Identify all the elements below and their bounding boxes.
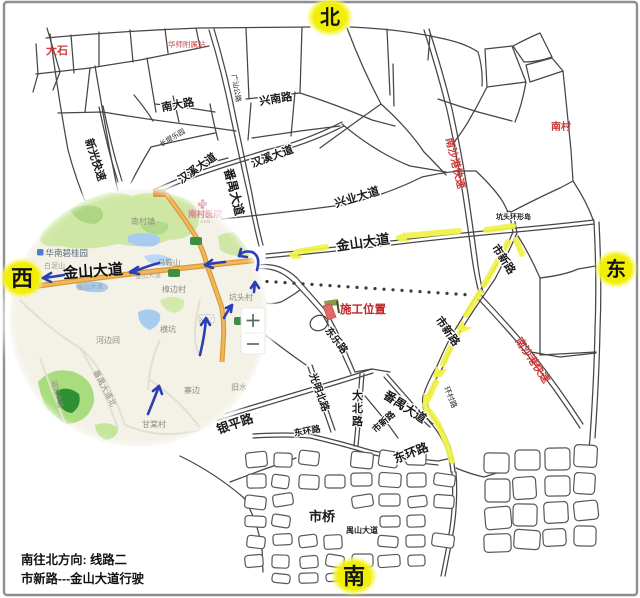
svg-text:禺山大道: 禺山大道: [346, 525, 378, 535]
svg-text:马鞍山: 马鞍山: [158, 257, 181, 267]
svg-text:施工位置: 施工位置: [340, 302, 386, 316]
svg-text:北: 北: [352, 401, 363, 415]
svg-text:甘棠村: 甘棠村: [142, 419, 166, 429]
svg-text:市新路---金山大道行驶: 市新路---金山大道行驶: [21, 571, 145, 586]
svg-text:南往北方向: 线路二: 南往北方向: 线路二: [21, 552, 127, 567]
svg-text:西: 西: [11, 266, 33, 291]
svg-text:北: 北: [320, 6, 340, 29]
svg-text:路: 路: [352, 414, 364, 428]
svg-text:坑头环形岛: 坑头环形岛: [496, 212, 531, 221]
svg-text:南: 南: [343, 564, 365, 589]
svg-text:大石: 大石: [46, 43, 68, 57]
svg-text:横坑: 横坑: [160, 324, 176, 334]
svg-text:南村: 南村: [551, 120, 571, 133]
svg-text:坑头村: 坑头村: [229, 292, 253, 302]
svg-text:A102: A102: [200, 219, 211, 224]
svg-text:樟边村: 樟边村: [162, 284, 186, 294]
svg-text:华南碧桂园: 华南碧桂园: [46, 248, 89, 258]
svg-text:市桥: 市桥: [309, 509, 336, 524]
svg-text:大: 大: [352, 388, 363, 402]
svg-text:河边间: 河边间: [96, 335, 120, 345]
svg-text:东: 东: [606, 257, 626, 281]
svg-text:寨边: 寨边: [184, 385, 200, 395]
svg-text:南村镇: 南村镇: [131, 216, 155, 226]
svg-text:华师附属站: 华师附属站: [168, 39, 206, 49]
